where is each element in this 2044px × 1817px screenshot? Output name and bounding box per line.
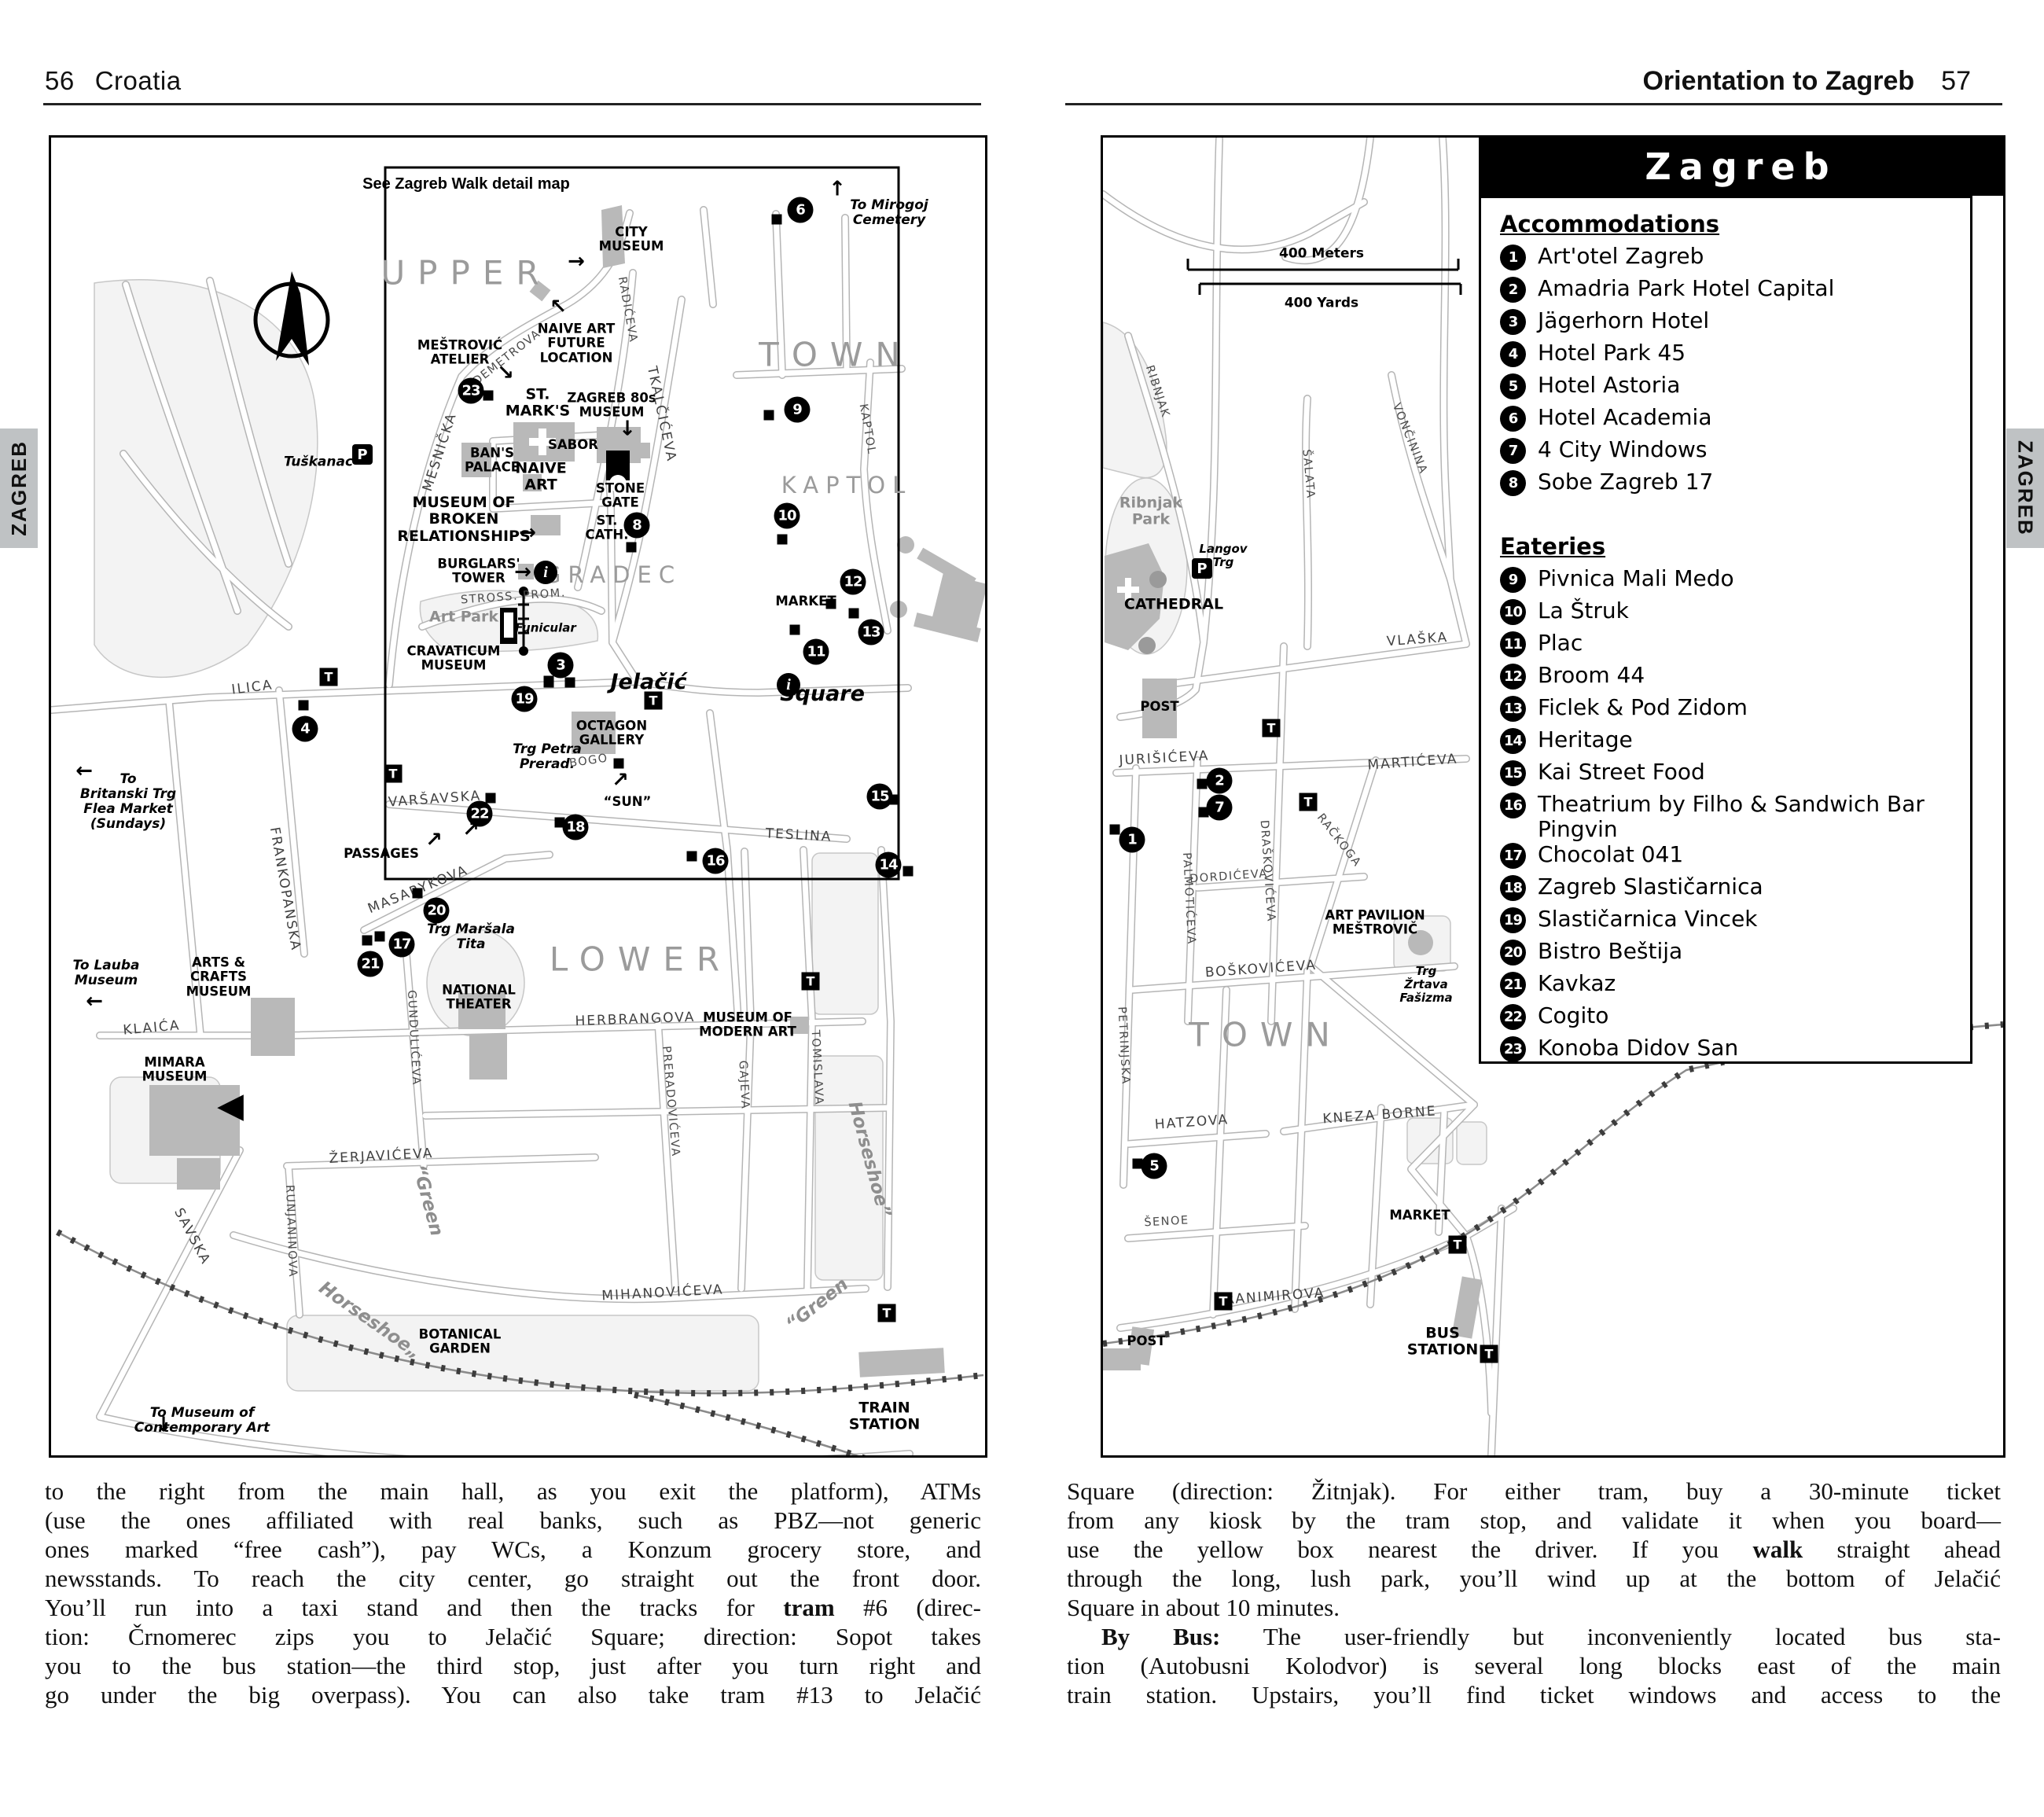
poi-dot — [486, 793, 496, 804]
legend-item: 6Hotel Academia — [1500, 405, 1970, 437]
map-label: 400 Meters — [1279, 246, 1364, 261]
legend-item: 9Pivnica Mali Medo — [1500, 566, 1970, 598]
arrow-icon: ← — [86, 990, 103, 1013]
map-label: ART PAVILION MEŠTROVIČ — [1325, 909, 1425, 938]
legend-item-label: Kavkaz — [1538, 971, 1616, 996]
legend-item: 12Broom 44 — [1500, 663, 1970, 695]
arrow-icon: ↓ — [619, 417, 636, 440]
legend-item-label: Jägerhorn Hotel — [1538, 308, 1709, 333]
poi-marker-13: 13 — [858, 620, 884, 646]
legend-item: 2Amadria Park Hotel Capital — [1500, 276, 1970, 308]
map-zagreb-overview: 400 Meters400 YardsRIBNJAKŠALATAVONČININ… — [1101, 135, 2005, 1458]
legend-item: 5Hotel Astoria — [1500, 373, 1970, 405]
map-label: Funicular — [515, 622, 576, 635]
legend-item-label: Hotel Park 45 — [1538, 340, 1686, 366]
legend-item: 13Ficlek & Pod Zidom — [1500, 695, 1970, 727]
poi-marker-18: 18 — [563, 815, 589, 840]
body-text-line: from any kiosk by the tram stop, and val… — [1067, 1506, 2001, 1535]
body-text-line: By Bus: The user-friendly but inconvenie… — [1067, 1622, 2001, 1651]
poi-dot — [849, 609, 859, 619]
map-label: MUSEUM OF BROKEN RELATIONSHIPS — [397, 495, 530, 545]
legend-item-label: Art'otel Zagreb — [1538, 244, 1704, 269]
legend-item-number: 8 — [1500, 470, 1526, 496]
legend-item-number: 1 — [1500, 245, 1526, 270]
poi-dot — [627, 543, 637, 553]
arrow-icon: ← — [75, 760, 93, 782]
scale-bar — [1188, 259, 1461, 295]
legend-item-label: Theatrium by Filho & Sandwich Bar Pingvi… — [1538, 792, 1962, 842]
legend-item: 20Bistro Beštija — [1500, 939, 1970, 971]
chapter-tab-right: ZAGREB — [2006, 429, 2044, 548]
map-label: CRAVATICUM MUSEUM — [407, 645, 501, 674]
map-label: NAIVE ART FUTURE LOCATION — [538, 322, 616, 365]
tourist-info-icon: i — [534, 561, 557, 584]
legend-item: 22Cogito — [1500, 1003, 1970, 1035]
header-rule-right — [1065, 103, 2002, 105]
body-text-line: You’ll run into a taxi stand and then th… — [45, 1593, 981, 1622]
body-text-line: to the right from the main hall, as you … — [45, 1477, 981, 1506]
poi-marker-17: 17 — [389, 932, 415, 958]
map-label: TOWN — [1189, 1016, 1343, 1053]
legend-item-number: 13 — [1500, 696, 1526, 722]
poi-marker-8: 8 — [624, 513, 650, 539]
legend-item-number: 18 — [1500, 875, 1526, 901]
legend-item-number: 20 — [1500, 940, 1526, 966]
map-label: KAPTOL — [781, 473, 913, 498]
map-label: ARTS & CRAFTS MUSEUM — [186, 955, 252, 999]
arrow-icon: → — [568, 250, 585, 273]
legend-item-label: Ficlek & Pod Zidom — [1538, 695, 1748, 720]
map-label: PASSAGES — [344, 847, 419, 861]
poi-marker-2: 2 — [1207, 768, 1233, 794]
map-label: To Lauba Museum — [72, 958, 139, 988]
map-label: ST. CATH. — [586, 514, 629, 543]
tram-stop-icon: T — [384, 765, 403, 783]
legend-item-label: Heritage — [1538, 727, 1633, 752]
parking-icon: P — [1192, 558, 1212, 579]
map-label: TRAIN STATION — [849, 1400, 920, 1434]
poi-dot — [764, 410, 774, 421]
poi-marker-12: 12 — [840, 569, 866, 595]
legend-item-label: 4 City Windows — [1538, 437, 1707, 462]
poi-dot — [1197, 779, 1208, 789]
poi-marker-9: 9 — [785, 397, 811, 423]
map-label: ST. MARK'S — [505, 387, 570, 421]
tram-stop-icon: T — [802, 973, 820, 991]
legend-item: 23Konoba Didov San — [1500, 1035, 1970, 1068]
body-text-right-column: Square (direction: Žitnjak). For either … — [1067, 1477, 2001, 1709]
legend-section-heading: Eateries — [1500, 533, 1970, 560]
map-label: GRADEC — [543, 562, 682, 587]
map-label: NAIVE ART — [515, 461, 566, 495]
body-text-line: ones marked “free cash”), pay WCs, a Kon… — [45, 1535, 981, 1564]
parking-icon: P — [352, 444, 373, 465]
tram-stop-icon: T — [645, 692, 663, 710]
map-label: NATIONAL THEATER — [442, 984, 516, 1013]
tram-stop-icon: T — [320, 668, 338, 686]
chapter-tab-label: ZAGREB — [2013, 440, 2038, 536]
map-label: LOWER — [550, 940, 732, 977]
poi-dot — [299, 701, 309, 711]
map-label: BOTANICAL GARDEN — [419, 1328, 502, 1357]
map-label: BAN'S PALACE — [465, 447, 520, 476]
poi-marker-19: 19 — [512, 686, 538, 712]
page-number-left: 56 — [45, 66, 75, 95]
legend-item: 16Theatrium by Filho & Sandwich Bar Ping… — [1500, 792, 1970, 842]
poi-marker-6: 6 — [788, 197, 814, 223]
map-label: MARKET — [1389, 1208, 1450, 1223]
body-text-line: newsstands. To reach the city center, go… — [45, 1564, 981, 1593]
map-label: POST — [1127, 1334, 1165, 1348]
legend-title: Zagreb — [1645, 145, 1836, 188]
body-text-line: (use the ones affiliated with real banks… — [45, 1506, 981, 1535]
legend-item-label: Slastičarnica Vincek — [1538, 907, 1758, 932]
legend-item-number: 19 — [1500, 907, 1526, 933]
map-label: OCTAGON GALLERY — [576, 719, 647, 749]
poi-marker-1: 1 — [1119, 827, 1145, 853]
map-zagreb-center: See Zagreb Walk detail mapTo Mirogoj Cem… — [49, 135, 987, 1458]
legend-item: 14Heritage — [1500, 727, 1970, 760]
legend-item-label: Kai Street Food — [1538, 760, 1705, 785]
legend-item: 11Plac — [1500, 631, 1970, 663]
map-label: Tuškanac — [284, 454, 353, 469]
poi-dot — [483, 391, 494, 401]
header-right: Orientation to Zagreb57 — [1642, 66, 1971, 97]
poi-dot — [1110, 825, 1120, 835]
map-label: BUS STATION — [1407, 1326, 1478, 1359]
body-text-line: through the long, lush park, you’ll wind… — [1067, 1564, 2001, 1593]
map-label: GAJEVA — [736, 1060, 751, 1109]
tourist-info-icon: i — [777, 673, 800, 697]
arrow-icon: ↗ — [612, 769, 629, 792]
map-label: Ribnjak Park — [1119, 495, 1182, 529]
section-title: Croatia — [95, 66, 182, 95]
arrow-icon: ↓ — [155, 1414, 172, 1436]
legend-item-label: Cogito — [1538, 1003, 1608, 1028]
arrow-icon: ↗ — [425, 829, 443, 851]
poi-marker-7: 7 — [1207, 795, 1233, 821]
poi-marker-16: 16 — [703, 848, 729, 874]
map-label: TOWN — [759, 336, 913, 373]
map-label: MIMARA MUSEUM — [142, 1056, 208, 1085]
poi-marker-23: 23 — [458, 378, 484, 404]
legend-item-number: 16 — [1500, 793, 1526, 818]
body-text-line: use the yellow box nearest the driver. I… — [1067, 1535, 2001, 1564]
legend-item-label: Bistro Beštija — [1538, 939, 1682, 964]
tram-stop-icon: T — [1449, 1236, 1467, 1254]
legend-item-number: 12 — [1500, 664, 1526, 690]
legend-item-number: 5 — [1500, 373, 1526, 399]
legend-item-label: Konoba Didov San — [1538, 1035, 1738, 1061]
legend-item-label: Hotel Astoria — [1538, 373, 1680, 398]
body-text-line: Square in about 10 minutes. — [1067, 1593, 2001, 1622]
chapter-tab-left: ZAGREB — [0, 429, 38, 548]
legend-item-label: La Štruk — [1538, 598, 1629, 623]
legend-item: 8Sobe Zagreb 17 — [1500, 469, 1970, 502]
body-text-line: train station. Upstairs, you’ll find tic… — [1067, 1680, 2001, 1709]
poi-dot — [413, 888, 423, 899]
legend-item: 18Zagreb Slastičarnica — [1500, 874, 1970, 907]
header-rule-left — [43, 103, 981, 105]
legend-item-label: Hotel Academia — [1538, 405, 1712, 430]
legend-item-number: 9 — [1500, 567, 1526, 593]
legend-item-number: 17 — [1500, 843, 1526, 869]
legend-item-number: 11 — [1500, 631, 1526, 657]
body-text-line: tion: Črnomerec zips you to Jelačić Squa… — [45, 1622, 981, 1651]
poi-marker-5: 5 — [1141, 1153, 1167, 1179]
map-label: To Mirogoj Cemetery — [850, 198, 928, 228]
map-label: POST — [1140, 700, 1178, 714]
poi-dot — [544, 676, 554, 686]
legend-item-label: Zagreb Slastičarnica — [1538, 874, 1763, 899]
poi-dot — [772, 215, 782, 225]
legend-title-bar: Zagreb — [1479, 138, 2003, 196]
arrow-icon: → — [514, 561, 531, 583]
poi-marker-14: 14 — [876, 852, 902, 878]
map-label: MUSEUM OF MODERN ART — [699, 1011, 796, 1040]
legend-item-label: Sobe Zagreb 17 — [1538, 469, 1713, 495]
map-label: Trg Maršala Tita — [427, 922, 515, 952]
legend-item-number: 2 — [1500, 277, 1526, 303]
arrow-icon: ◀ — [217, 1086, 244, 1124]
legend-item-number: 3 — [1500, 309, 1526, 335]
arrow-icon: ↑ — [829, 178, 846, 200]
body-text-line: you to the bus station—the third stop, j… — [45, 1651, 981, 1680]
poi-marker-3: 3 — [548, 653, 574, 679]
map-label: ZAGREB 80s MUSEUM — [567, 392, 656, 421]
legend-item-number: 15 — [1500, 760, 1526, 786]
chapter-title: Orientation to Zagreb — [1642, 66, 1914, 96]
poi-dot — [614, 759, 624, 769]
tram-stop-icon: T — [1480, 1345, 1498, 1363]
legend-item: 21Kavkaz — [1500, 971, 1970, 1003]
poi-marker-22: 22 — [467, 801, 493, 827]
poi-dot — [790, 625, 800, 635]
map-label: STONE GATE — [596, 482, 645, 511]
legend-item-label: Broom 44 — [1538, 663, 1645, 688]
chapter-tab-label: ZAGREB — [7, 440, 31, 536]
poi-marker-20: 20 — [424, 898, 450, 924]
legend-item-number: 6 — [1500, 406, 1526, 432]
legend-item-label: Pivnica Mali Medo — [1538, 566, 1734, 591]
legend-item-number: 7 — [1500, 438, 1526, 464]
map-label: Art Park — [429, 609, 498, 625]
poi-marker-21: 21 — [358, 951, 384, 977]
tram-stop-icon: T — [878, 1304, 896, 1322]
map-label: BURGLARS' TOWER — [437, 557, 520, 587]
legend-box: Accommodations1Art'otel Zagreb2Amadria P… — [1479, 196, 1972, 1064]
map-label: See Zagreb Walk detail map — [362, 175, 570, 193]
map-label: CITY MUSEUM — [599, 226, 664, 255]
legend-item: 15Kai Street Food — [1500, 760, 1970, 792]
poi-dot — [687, 851, 697, 862]
map-label: UPPER — [380, 254, 551, 291]
map-label: ŠENOE — [1144, 1214, 1189, 1229]
map-label: “SUN” — [604, 795, 652, 809]
map-label: 400 Yards — [1285, 296, 1358, 311]
legend-section-heading: Accommodations — [1500, 211, 1970, 237]
header-left: 56Croatia — [45, 66, 182, 96]
legend-item-number: 23 — [1500, 1036, 1526, 1062]
legend-item-number: 4 — [1500, 341, 1526, 367]
legend-item-label: Plac — [1538, 631, 1583, 656]
body-text-left-column: to the right from the main hall, as you … — [45, 1477, 981, 1709]
poi-dot — [1133, 1159, 1143, 1169]
poi-dot — [778, 535, 788, 545]
poi-dot — [889, 795, 899, 805]
poi-marker-11: 11 — [803, 639, 829, 665]
legend-item: 17Chocolat 041 — [1500, 842, 1970, 874]
poi-dot — [555, 818, 565, 828]
legend-item-label: Amadria Park Hotel Capital — [1538, 276, 1834, 301]
poi-dot — [826, 599, 836, 609]
legend-item: 10La Štruk — [1500, 598, 1970, 631]
map-label: SABOR — [548, 438, 598, 452]
map-label: CATHEDRAL — [1124, 596, 1223, 612]
legend-item-number: 10 — [1500, 599, 1526, 625]
legend-item-number: 21 — [1500, 972, 1526, 998]
legend-item: 19Slastičarnica Vincek — [1500, 907, 1970, 939]
arrow-icon: ↖ — [550, 296, 567, 318]
poi-dot — [1199, 807, 1209, 818]
legend-item: 74 City Windows — [1500, 437, 1970, 469]
legend-item: 4Hotel Park 45 — [1500, 340, 1970, 373]
legend-item-label: Chocolat 041 — [1538, 842, 1683, 867]
poi-dot — [565, 678, 575, 688]
body-text-line: tion (Autobusni Kolodvor) is several lon… — [1067, 1651, 2001, 1680]
page-number-right: 57 — [1941, 66, 1971, 96]
poi-dot — [362, 936, 373, 946]
body-text-line: go under the big overpass). You can also… — [45, 1680, 981, 1709]
tram-stop-icon: T — [1300, 793, 1318, 811]
poi-dot — [903, 866, 914, 877]
legend-item-number: 14 — [1500, 728, 1526, 754]
arrow-icon: → — [519, 521, 536, 544]
poi-marker-4: 4 — [292, 716, 318, 742]
poi-dot — [375, 932, 385, 942]
map-label: To Britanski Trg Flea Market (Sundays) — [80, 772, 176, 832]
tram-stop-icon: T — [1215, 1293, 1233, 1311]
map-label: Trg Žrtava Fašizma — [1399, 965, 1452, 1004]
legend-item: 3Jägerhorn Hotel — [1500, 308, 1970, 340]
poi-marker-10: 10 — [774, 503, 800, 529]
tram-stop-icon: T — [1263, 719, 1281, 737]
body-text-line: Square (direction: Žitnjak). For either … — [1067, 1477, 2001, 1506]
legend-item: 1Art'otel Zagreb — [1500, 244, 1970, 276]
legend-item-number: 22 — [1500, 1004, 1526, 1030]
